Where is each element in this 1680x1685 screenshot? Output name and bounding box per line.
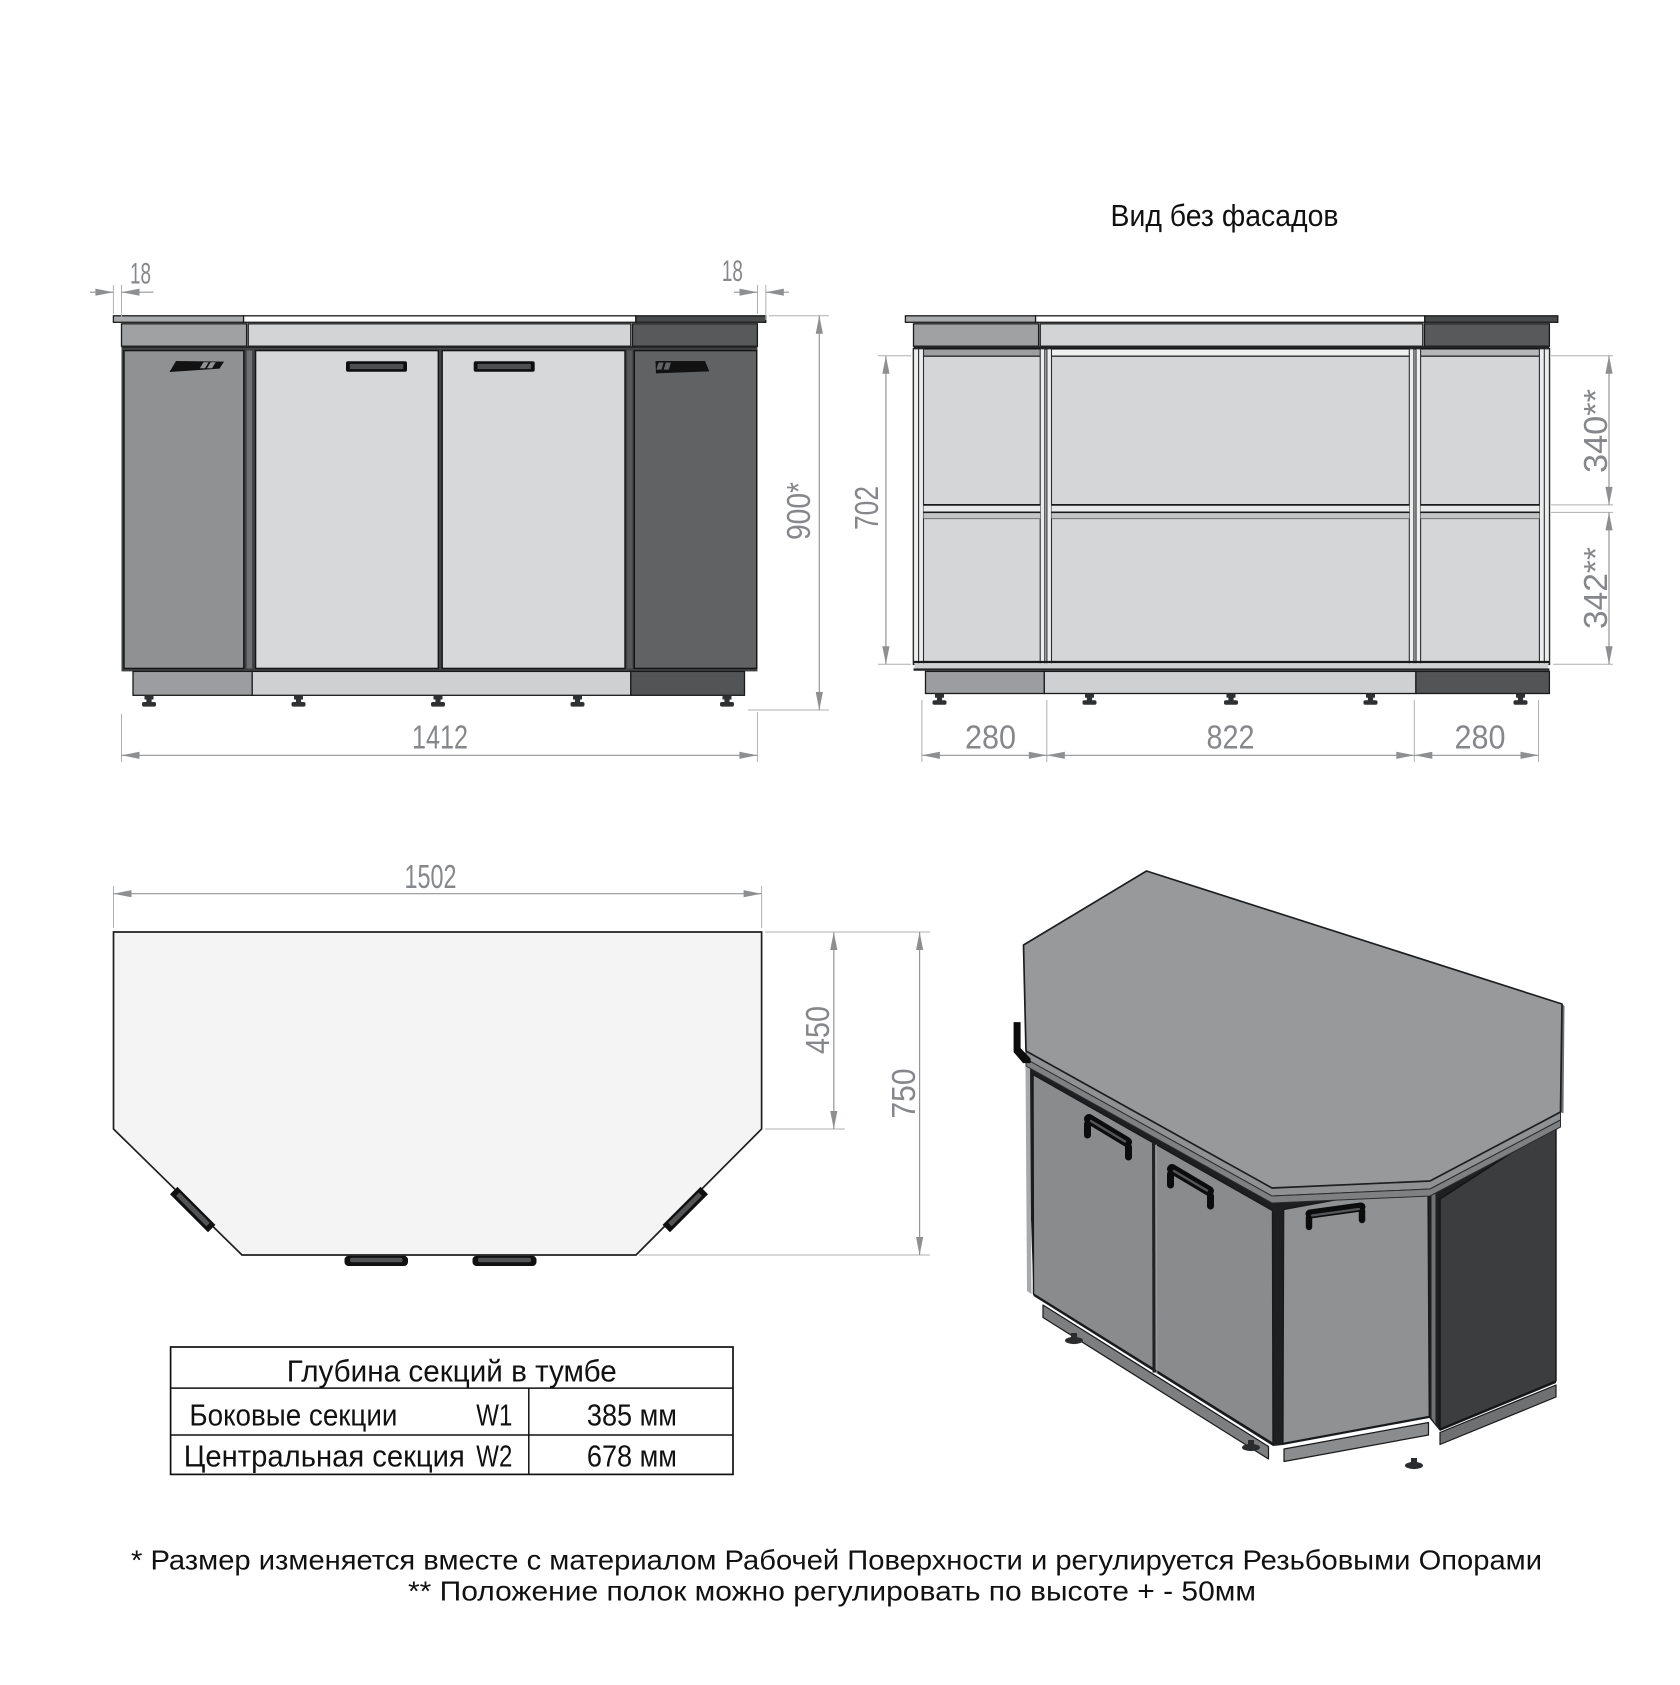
svg-text:Боковые секции: Боковые секции [189,1398,397,1433]
svg-text:* Размер изменяется вместе с м: * Размер изменяется вместе с материалом … [131,1545,1542,1576]
svg-text:340**: 340** [1577,389,1614,473]
svg-text:385 мм: 385 мм [587,1398,677,1433]
svg-text:750: 750 [885,1069,922,1119]
svg-text:Центральная секция: Центральная секция [184,1439,465,1474]
svg-text:1412: 1412 [412,719,468,756]
svg-text:280: 280 [965,719,1016,756]
svg-text:18: 18 [130,258,151,291]
svg-text:1502: 1502 [405,858,457,895]
svg-text:18: 18 [722,255,743,288]
svg-text:W2: W2 [476,1439,512,1474]
svg-text:822: 822 [1207,719,1255,756]
svg-text:702: 702 [848,486,885,530]
svg-text:Вид без фасадов: Вид без фасадов [1111,198,1339,233]
svg-text:Глубина секций в тумбе: Глубина секций в тумбе [287,1354,617,1389]
svg-text:342**: 342** [1577,547,1614,629]
svg-text:** Положение полок можно регул: ** Положение полок можно регулировать по… [408,1576,1256,1607]
svg-text:W1: W1 [476,1398,512,1433]
svg-text:678 мм: 678 мм [587,1439,677,1474]
svg-text:450: 450 [799,1006,836,1054]
svg-text:280: 280 [1455,719,1506,756]
svg-text:900*: 900* [780,482,817,540]
